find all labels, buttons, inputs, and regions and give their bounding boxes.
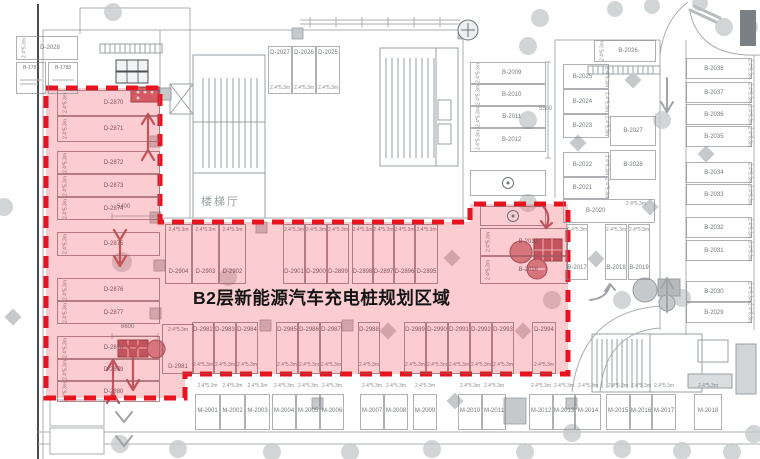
stair-core-b bbox=[380, 48, 458, 166]
aisle-dimension-6600: 6600 bbox=[121, 324, 134, 330]
zone-title: B2层新能源汽车充电桩规划区域 bbox=[193, 285, 450, 310]
floorplan-linework bbox=[0, 0, 760, 459]
aisle-dimension-5500: 5500 bbox=[539, 106, 552, 112]
floorplan-canvas: 2.4*5.3mD-28702.4*5.3mD-28712.4*5.3mD-28… bbox=[0, 0, 760, 459]
stair-core-a bbox=[170, 55, 265, 218]
aisle-dimension-5400: 5400 bbox=[117, 204, 130, 210]
stair-hall-label: 楼梯厅 bbox=[201, 197, 240, 208]
charging-zone-fill bbox=[46, 88, 568, 398]
